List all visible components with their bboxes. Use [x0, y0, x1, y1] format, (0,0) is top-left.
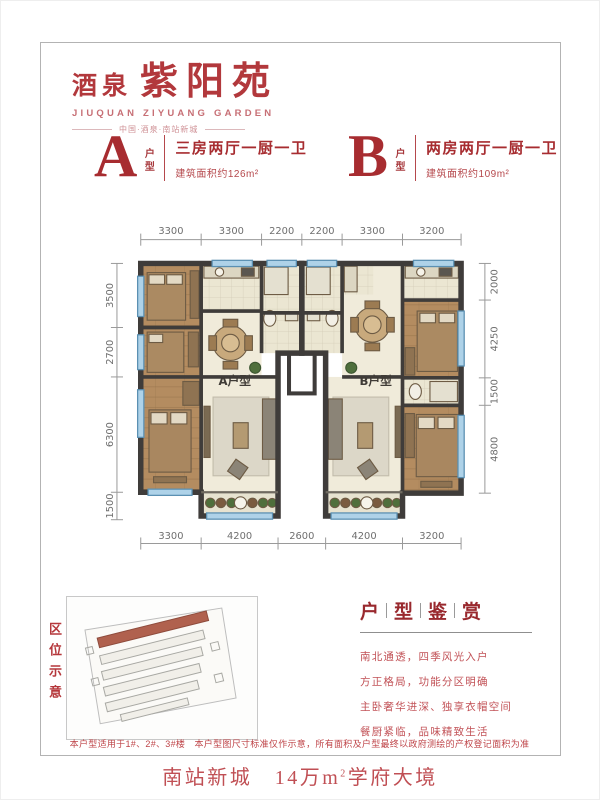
stove-b	[439, 268, 452, 276]
toilet-b2	[409, 384, 421, 400]
tv-stand-b	[395, 406, 401, 457]
dimension-label: 2200	[309, 226, 334, 237]
dimension-label: 2000	[489, 269, 500, 294]
stove-a	[241, 268, 254, 276]
footer-area-sup: 2	[340, 768, 348, 779]
unit-a-area: 建筑面积约126m²	[175, 165, 307, 180]
plant-dining-b	[346, 362, 357, 373]
disclaimer-text: 本户型适用于1#、2#、3#楼 本户型图尺寸标准仅作示意，所有面积及户型最终以政…	[40, 737, 559, 750]
dimension-label: 4200	[227, 531, 252, 542]
title-divider	[386, 603, 387, 618]
footer-slogan: 南站新城 14万m2学府大境	[0, 761, 600, 790]
unit-a-letter: A	[94, 130, 137, 182]
dimension-label: 4800	[489, 437, 500, 462]
unit-b-rooms: 两房两厅一厨一卫	[426, 137, 558, 158]
floor-plan-svg: A户型 B户型 33003300220022003300320033004200…	[84, 210, 516, 564]
plant-dining-a	[250, 362, 261, 373]
tub-b2	[430, 382, 457, 402]
wardrobe-a1	[190, 271, 199, 319]
dimension-label: 3300	[158, 531, 183, 542]
shower-b	[306, 267, 330, 294]
unit-a-rooms: 三房两厅一厨一卫	[175, 137, 307, 158]
appreciation-title: 户型鉴赏	[360, 597, 532, 624]
unit-a-divider	[164, 135, 165, 181]
appreciation-title-char: 型	[394, 597, 413, 624]
appreciation-title-char: 户	[360, 597, 379, 624]
sofa-b	[328, 399, 342, 459]
dimension-label: 2200	[269, 226, 294, 237]
dimension-label: 3200	[419, 531, 444, 542]
dimension-label: 4200	[351, 531, 376, 542]
dimension-label: 3200	[419, 226, 444, 237]
dimension-label: 1500	[489, 379, 500, 404]
dimension-label: 3300	[360, 226, 385, 237]
unit-b-type-label: 户型	[391, 148, 406, 182]
desk-a2	[188, 332, 198, 367]
coffee-table-a	[233, 423, 248, 449]
appreciation-title-char: 赏	[462, 597, 481, 624]
footer-location: 南站新城	[162, 767, 252, 789]
poster-page: { "logo": { "brand_prefix": "酒泉", "brand…	[0, 0, 600, 800]
title-divider	[420, 603, 421, 618]
unit-b-divider	[415, 135, 416, 181]
site-map-box	[66, 596, 258, 740]
coffee-table-b	[358, 423, 373, 449]
unit-b-heading: B 户型 两房两厅一厨一卫 建筑面积约109m²	[348, 130, 558, 182]
plan-label-unit-a: A户型	[219, 374, 252, 388]
feature-line: 南北通透，四季风光入户	[360, 645, 532, 670]
wardrobe-b1	[405, 348, 415, 375]
dimension-label: 4250	[489, 326, 500, 351]
footer-suffix: 学府大境	[348, 767, 438, 789]
appreciation-title-char: 鉴	[428, 597, 447, 624]
appreciation-lines: 南北通透，四季风光入户方正格局，功能分区明确主卧奢华进深、独享衣帽空间餐厨紧临，…	[360, 645, 532, 745]
unit-a-heading: A 户型 三房两厅一厨一卫 建筑面积约126m²	[94, 130, 307, 182]
site-map-sketch	[67, 597, 255, 737]
dimension-label: 3300	[158, 226, 183, 237]
dimension-label: 2700	[105, 340, 116, 365]
dimension-label: 3500	[105, 283, 116, 308]
unit-b-letter: B	[348, 130, 388, 182]
shower-a	[264, 267, 288, 294]
footer-area: 14万m	[252, 767, 340, 789]
wardrobe-master-b	[405, 414, 414, 458]
feature-line: 主卧奢华进深、独享衣帽空间	[360, 695, 532, 720]
tv-stand-a	[204, 406, 210, 457]
stair-core	[289, 353, 315, 393]
brand-name: 紫阳苑	[140, 50, 278, 105]
sofa-a	[262, 399, 276, 459]
counter-dining-b	[344, 266, 357, 292]
plan-label-unit-b: B户型	[359, 374, 392, 388]
brand-city: 酒泉	[72, 66, 132, 102]
appreciation-section: 户型鉴赏 南北通透，四季风光入户方正格局，功能分区明确主卧奢华进深、独享衣帽空间…	[360, 597, 532, 745]
feature-line: 方正格局，功能分区明确	[360, 670, 532, 695]
unit-b-area: 建筑面积约109m²	[426, 165, 558, 180]
brand-name-english: JIUQUAN ZIYUANG GARDEN	[72, 108, 278, 119]
appreciation-underline	[360, 632, 532, 633]
site-map-label: 区位示意	[45, 622, 64, 706]
dimension-label: 2600	[289, 531, 314, 542]
dimension-label: 1500	[105, 493, 116, 518]
unit-a-type-label: 户型	[140, 148, 155, 182]
dimension-label: 3300	[219, 226, 244, 237]
title-divider	[454, 603, 455, 618]
dimension-label: 6300	[105, 422, 116, 447]
wardrobe-master-a	[183, 382, 199, 406]
